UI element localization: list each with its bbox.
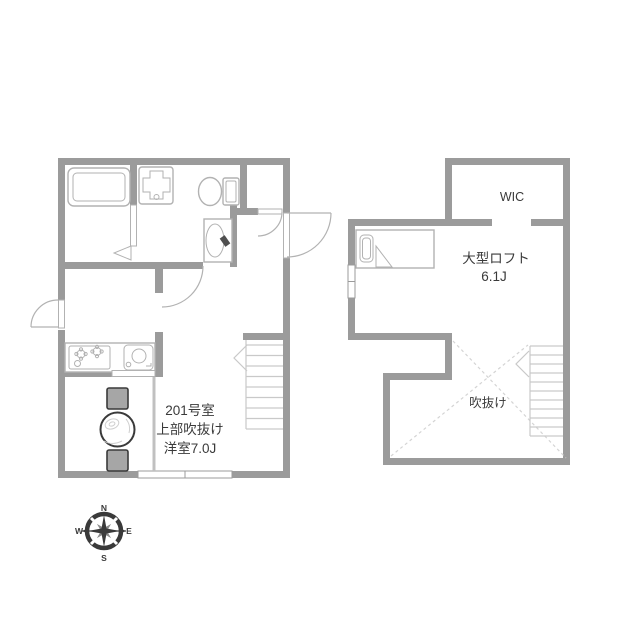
wall [445, 165, 452, 226]
wall [232, 471, 290, 478]
floor-plan-drawing: 201号室 上部吹抜け 洋室7.0J [0, 0, 640, 640]
wall [240, 165, 247, 209]
washbasin [204, 219, 232, 262]
wall [383, 380, 390, 465]
loft-size-label: 6.1J [481, 269, 507, 284]
wall [283, 165, 290, 213]
loft-label: 大型ロフト 6.1J [462, 251, 530, 284]
wall [130, 165, 137, 205]
wall [563, 165, 570, 465]
wall [58, 471, 138, 478]
wall [243, 333, 283, 340]
compass-rose: N E S W [75, 503, 132, 563]
wic-label: WIC [500, 190, 524, 204]
room-label: 201号室 上部吹抜け 洋室7.0J [156, 402, 224, 456]
compass-w: W [75, 526, 84, 536]
compass-e: E [126, 526, 132, 536]
dining-table [101, 413, 135, 447]
toilet [199, 178, 240, 206]
wall [155, 262, 163, 293]
wall [58, 330, 65, 478]
room-size-label: 洋室7.0J [164, 440, 217, 456]
upper-void-label: 上部吹抜け [156, 422, 224, 437]
entrance-door [31, 300, 65, 328]
bathroom-sliding-door [114, 205, 137, 260]
window [138, 471, 232, 478]
wall [531, 219, 563, 226]
floor-plan-page: 201号室 上部吹抜け 洋室7.0J [0, 0, 640, 640]
wall [155, 332, 163, 377]
compass-n: N [101, 503, 107, 513]
room-door [162, 262, 203, 307]
kitchen-counter [65, 343, 155, 377]
wall [58, 165, 65, 300]
wall [383, 458, 570, 465]
room-number-label: 201号室 [165, 402, 215, 418]
dining-chair [107, 450, 128, 471]
stair-direction-arrow [234, 345, 247, 371]
wall [348, 333, 452, 340]
bathtub [68, 168, 130, 206]
loft-staircase [516, 346, 563, 436]
first-floor-plan: 201号室 上部吹抜け 洋室7.0J [31, 158, 331, 478]
dining-chair [107, 388, 128, 409]
staircase [234, 340, 283, 429]
wall [348, 219, 492, 226]
wall [383, 373, 452, 380]
exterior-door [284, 213, 332, 258]
loft-floor-plan: WIC 大型ロフト 6.1J 吹抜け [348, 158, 570, 465]
wall [58, 158, 290, 165]
compass-s: S [101, 553, 107, 563]
wall [283, 258, 290, 478]
washing-machine-pan [139, 167, 173, 204]
wall [445, 158, 570, 165]
loft-name-label: 大型ロフト [462, 251, 530, 266]
wall [230, 208, 258, 215]
wall [348, 226, 355, 265]
loft-window [348, 265, 355, 298]
toilet-door [258, 209, 282, 236]
area-boundary-line [153, 377, 156, 471]
wall [58, 262, 162, 269]
bed [356, 230, 434, 268]
stair-direction-arrow [516, 351, 529, 377]
void-label: 吹抜け [469, 395, 507, 410]
